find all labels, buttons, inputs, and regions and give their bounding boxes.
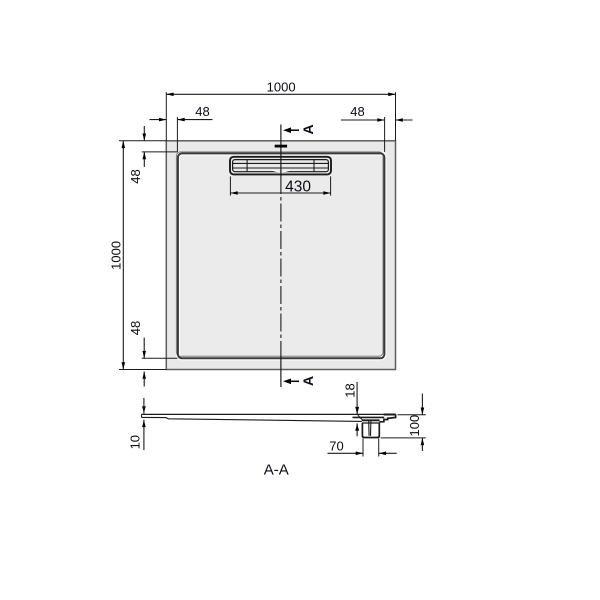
svg-text:A-A: A-A (264, 462, 289, 479)
svg-text:48: 48 (350, 104, 364, 119)
svg-text:1000: 1000 (109, 241, 124, 270)
svg-text:18: 18 (343, 383, 358, 397)
svg-text:1000: 1000 (267, 80, 296, 95)
svg-text:430: 430 (285, 178, 311, 195)
svg-text:100: 100 (407, 415, 422, 437)
svg-text:70: 70 (329, 438, 343, 453)
svg-text:48: 48 (128, 169, 143, 183)
svg-text:48: 48 (128, 321, 143, 335)
svg-text:48: 48 (195, 104, 209, 119)
svg-text:10: 10 (128, 435, 143, 449)
svg-text:A: A (300, 124, 316, 134)
svg-text:A: A (300, 376, 316, 386)
